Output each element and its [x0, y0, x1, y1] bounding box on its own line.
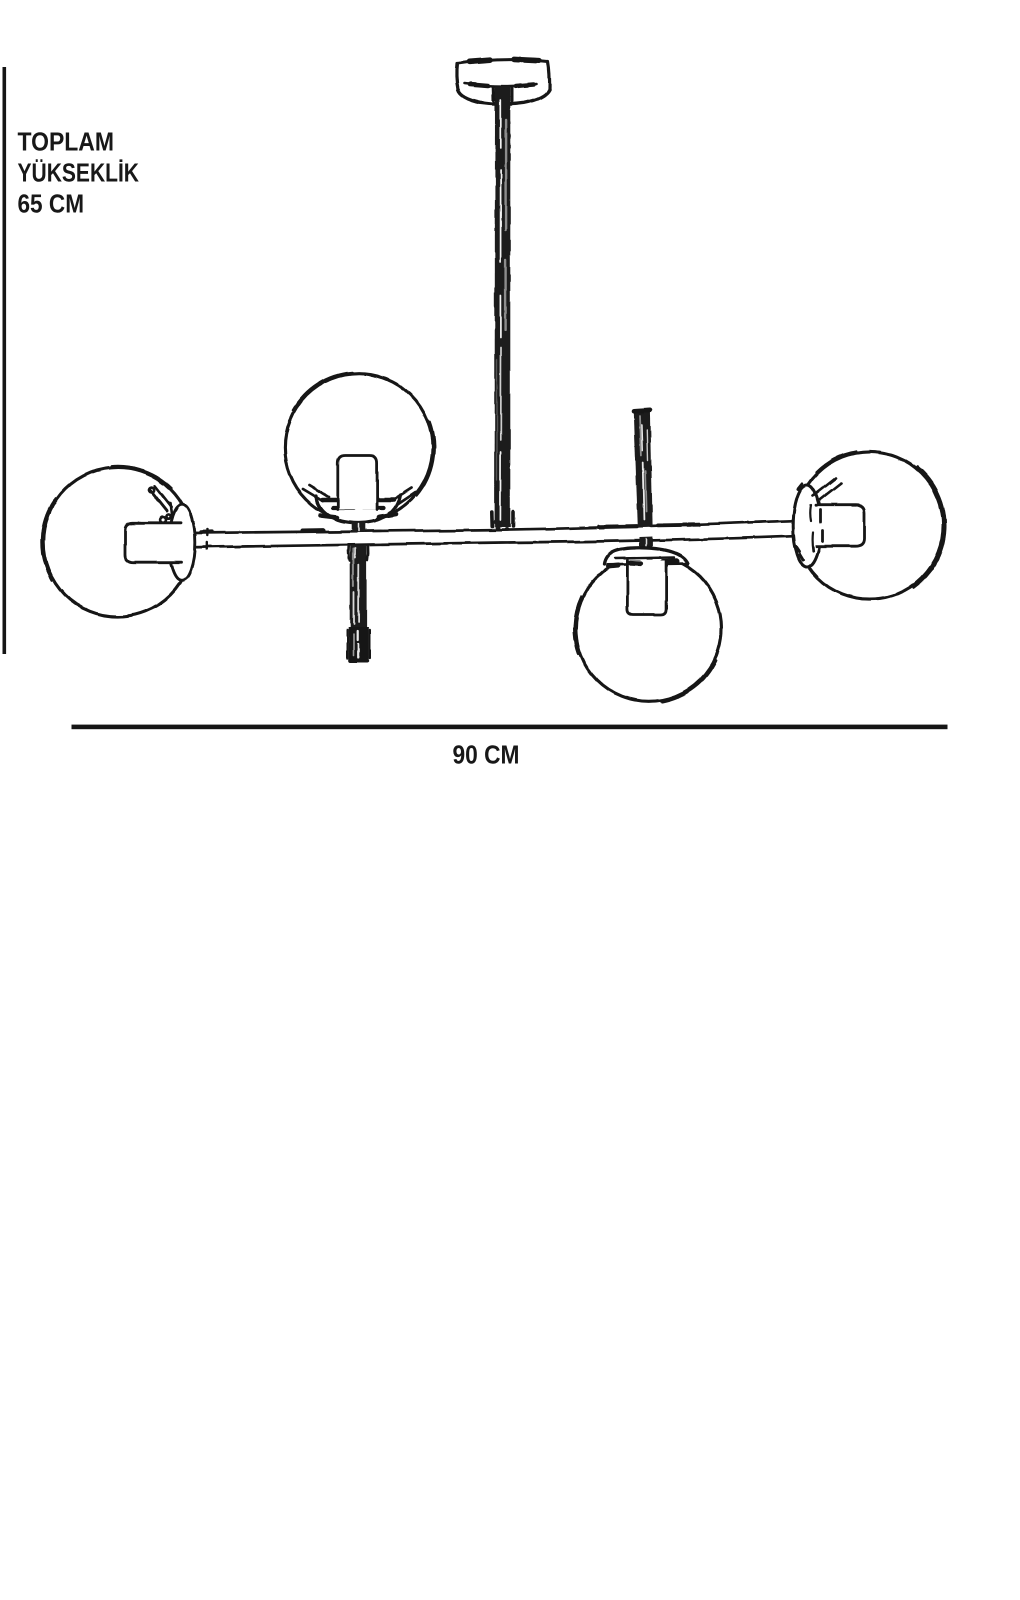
svg-text:TOPLAM: TOPLAM: [18, 129, 115, 157]
svg-text:90 CM: 90 CM: [453, 742, 520, 770]
svg-text:YÜKSEKLİK: YÜKSEKLİK: [18, 159, 140, 188]
svg-text:65 CM: 65 CM: [18, 191, 85, 219]
